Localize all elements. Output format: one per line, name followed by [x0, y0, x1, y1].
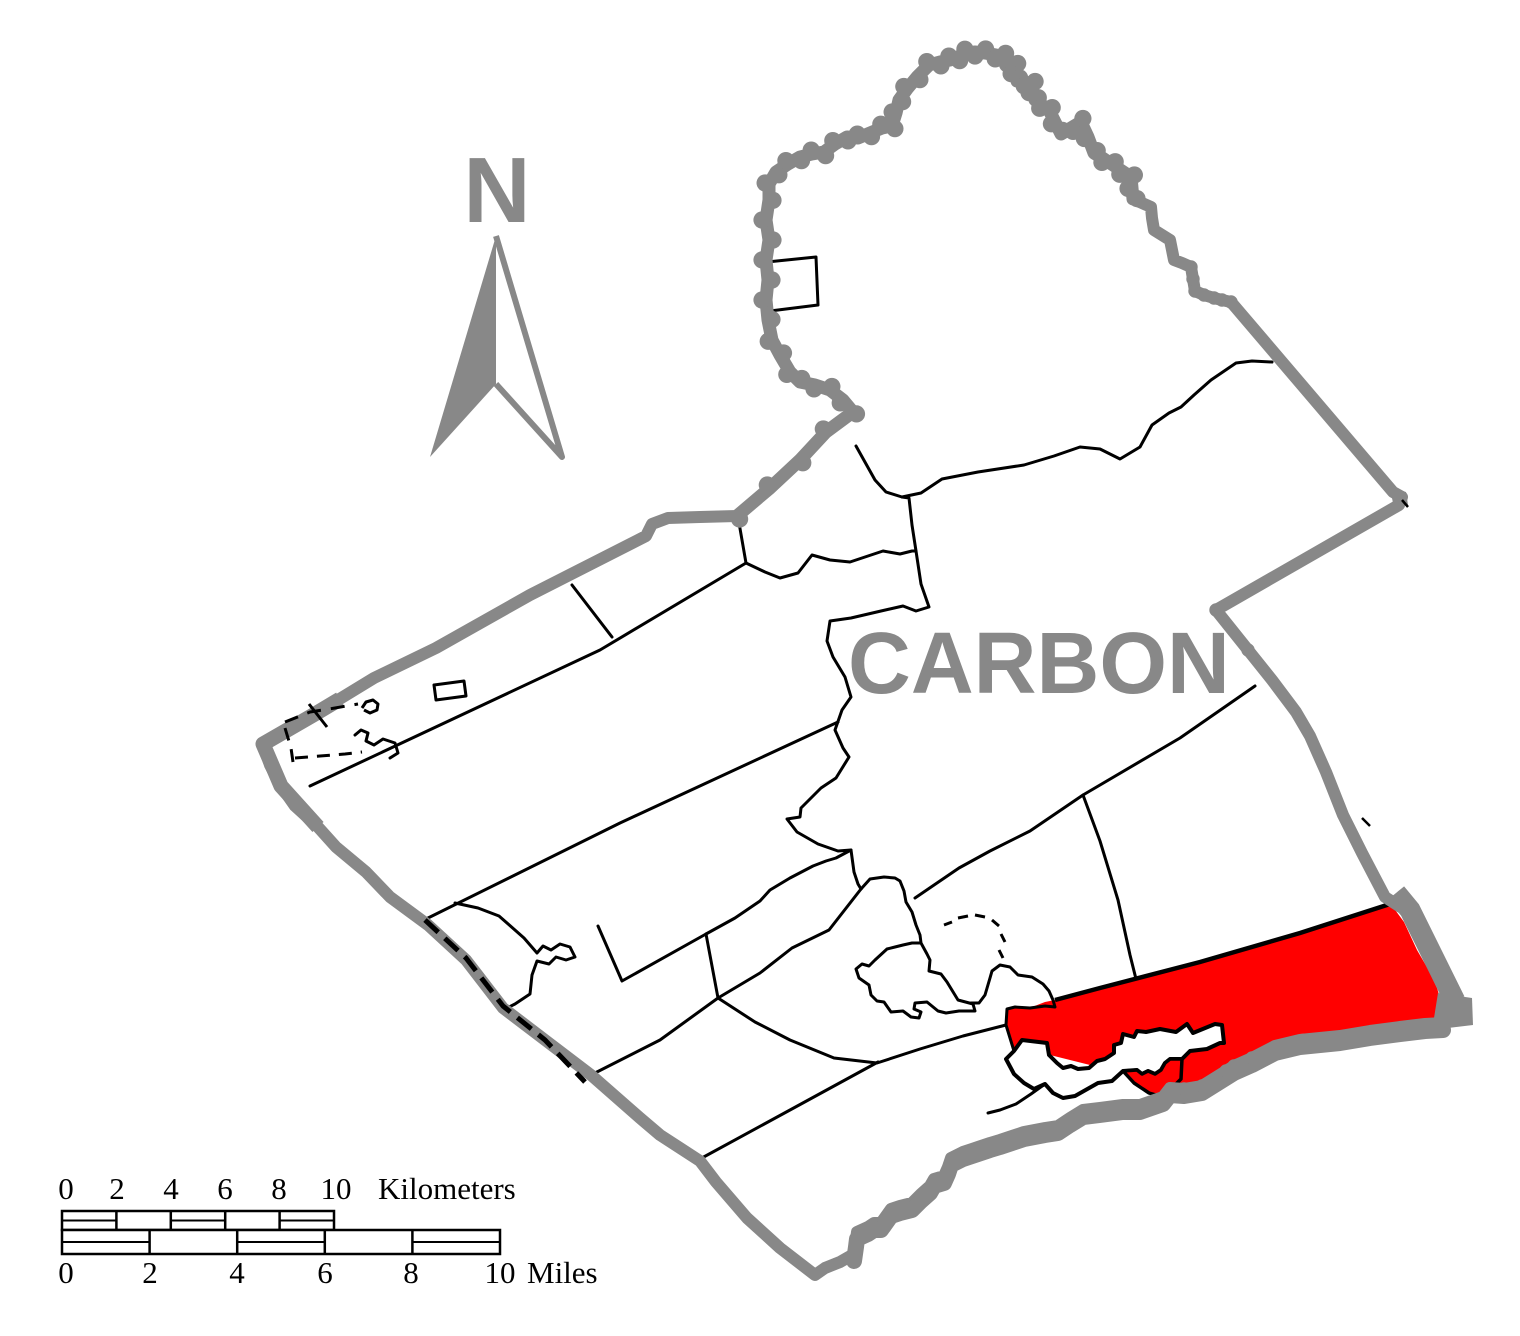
svg-text:8: 8	[271, 1171, 287, 1206]
svg-text:6: 6	[217, 1171, 233, 1206]
svg-text:8: 8	[403, 1255, 419, 1290]
svg-text:10: 10	[321, 1171, 352, 1206]
svg-text:0: 0	[58, 1171, 74, 1206]
svg-text:Kilometers: Kilometers	[378, 1171, 516, 1206]
svg-text:10: 10	[485, 1255, 516, 1290]
svg-text:Miles: Miles	[527, 1255, 598, 1290]
svg-text:2: 2	[142, 1255, 158, 1290]
svg-text:0: 0	[58, 1255, 74, 1290]
svg-text:2: 2	[109, 1171, 125, 1206]
svg-text:4: 4	[163, 1171, 179, 1206]
svg-text:N: N	[463, 138, 530, 242]
svg-text:6: 6	[317, 1255, 333, 1290]
svg-text:4: 4	[229, 1255, 245, 1290]
svg-text:CARBON: CARBON	[848, 615, 1230, 712]
